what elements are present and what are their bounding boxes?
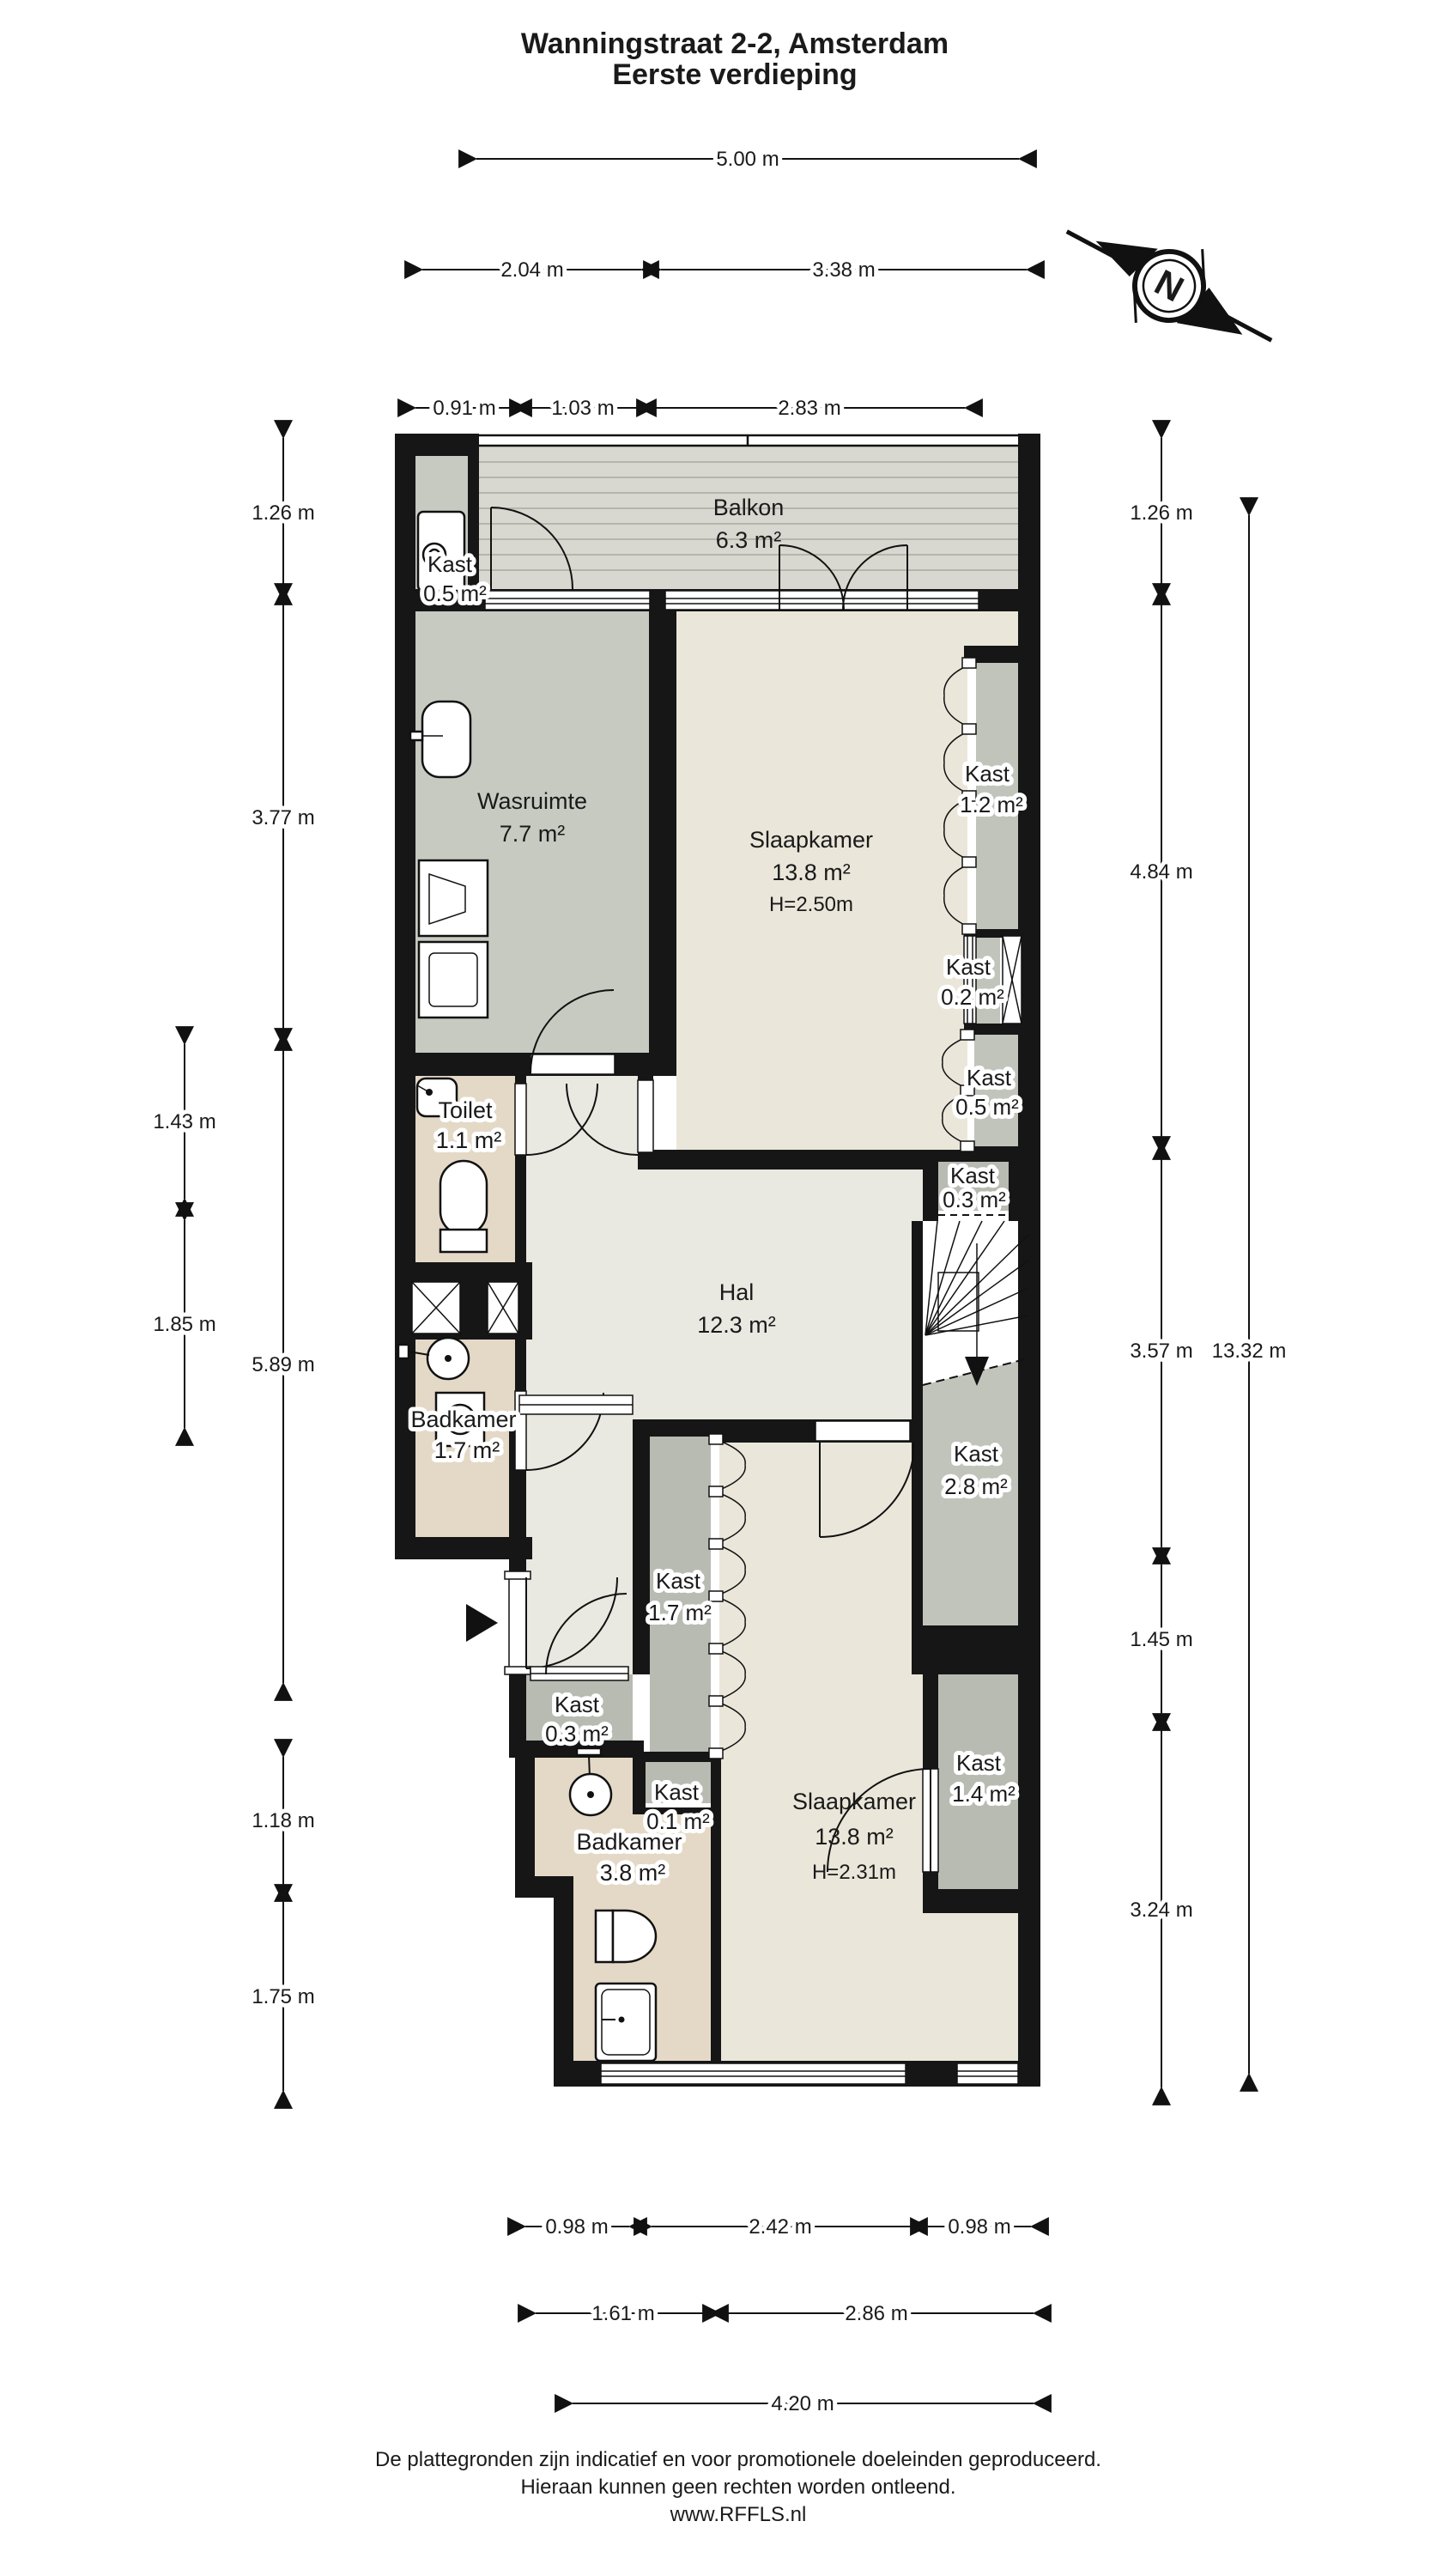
- dim-top-283: 2.83 m: [654, 397, 965, 420]
- dim-left-377: 3.77 m: [252, 601, 314, 1033]
- dim-label: 2.86 m: [845, 2302, 907, 2325]
- compass-icon: N: [1045, 189, 1294, 383]
- room-wasruimte-label: Wasruimte: [477, 788, 587, 814]
- dim-bottom-098b: 0.98 m: [928, 2215, 1031, 2239]
- room-hal-floor-corridor: [526, 1419, 633, 1674]
- room-kast17-label: Kast: [656, 1568, 701, 1594]
- room-hal-floor-upper: [526, 1076, 638, 1170]
- dim-label: 2.83 m: [778, 397, 840, 420]
- room-kast14-area: 1.4 m²: [952, 1781, 1016, 1807]
- entry-door-opening: [509, 1577, 526, 1668]
- dim-label: 1.18 m: [252, 1809, 314, 1832]
- room-kast28-area: 2.8 m²: [944, 1473, 1008, 1499]
- room-slaapkamer2-label: Slaapkamer: [792, 1789, 916, 1814]
- dim-label: 3.57 m: [1130, 1340, 1192, 1363]
- room-kast17-floor: [650, 1437, 711, 1754]
- dim-label: 3.77 m: [252, 806, 314, 829]
- dim-right-145: 1.45 m: [1130, 1565, 1192, 1713]
- dim-right-357: 3.57 m: [1130, 1154, 1192, 1546]
- window: [485, 591, 650, 610]
- room-kast05b-area: 0.5 m²: [955, 1094, 1019, 1120]
- room-balkon-area: 6.3 m²: [716, 527, 782, 553]
- door-opening: [964, 936, 976, 1024]
- dim-bottom-242: 2.42 m: [652, 2215, 910, 2239]
- dim-label: 1.61 m: [591, 2302, 654, 2325]
- room-hal-area: 12.3 m²: [697, 1312, 776, 1338]
- footer: De plattegronden zijn indicatief en voor…: [375, 2448, 1101, 2526]
- room-balkon-label: Balkon: [713, 495, 785, 520]
- washing-machine-icon: [419, 860, 488, 936]
- window: [665, 591, 979, 610]
- dim-right-126: 1.26 m: [1130, 438, 1192, 587]
- dim-label: 5.00 m: [716, 148, 779, 171]
- room-kast03l-area: 0.3 m²: [545, 1721, 609, 1747]
- room-kast17-area: 1.7 m²: [648, 1600, 712, 1625]
- door-opening: [530, 1054, 615, 1074]
- dim-top-091: 0.91 m: [415, 397, 514, 420]
- dim-label: 1.26 m: [252, 501, 314, 525]
- footer-disclaimer-1: De plattegronden zijn indicatief en voor…: [375, 2448, 1101, 2471]
- room-slaapkamer2-height: H=2.31m: [812, 1861, 896, 1884]
- room-badkamer2-area: 3.8 m²: [600, 1860, 666, 1886]
- room-slaapkamer1-label: Slaapkamer: [749, 827, 873, 853]
- dim-bottom-098a: 0.98 m: [525, 2215, 629, 2239]
- room-badkamer1-area: 1.7 m²: [434, 1437, 500, 1463]
- dim-label: 2.42 m: [749, 2215, 811, 2239]
- room-kast02-floor: [976, 936, 1000, 1024]
- floorplan-svg: Wanningstraat 2-2, Amsterdam Eerste verd…: [0, 0, 1449, 2576]
- room-kast03r-label: Kast: [950, 1163, 996, 1188]
- toilet-icon: [440, 1161, 487, 1252]
- room-kast28-label: Kast: [954, 1441, 999, 1467]
- dim-label: 2.04 m: [500, 258, 563, 282]
- room-kast02-area: 0.2 m²: [941, 984, 1004, 1010]
- entry-arrow-icon: [466, 1604, 498, 1642]
- room-kast12-label: Kast: [965, 761, 1010, 787]
- room-kast02-label: Kast: [946, 954, 991, 980]
- dim-label: 1.45 m: [1130, 1628, 1192, 1651]
- dim-top-103: 1.03 m: [527, 397, 639, 420]
- room-badkamer2-label: Badkamer: [576, 1829, 682, 1855]
- room-toilet-label: Toilet: [438, 1097, 493, 1123]
- dim-label: 0.91 m: [433, 397, 495, 420]
- floorplan-page: Wanningstraat 2-2, Amsterdam Eerste verd…: [0, 0, 1449, 2576]
- dim-left-175: 1.75 m: [252, 1902, 314, 2091]
- dryer-icon: [419, 942, 488, 1018]
- room-kast03r-area: 0.3 m²: [943, 1187, 1006, 1212]
- room-badkamer1-label: Badkamer: [410, 1406, 516, 1432]
- dim-label: 4.20 m: [771, 2392, 834, 2415]
- dim-label: 1.85 m: [153, 1313, 215, 1336]
- dim-left-118: 1.18 m: [252, 1757, 314, 1884]
- dim-right-1332: 13.32 m: [1212, 515, 1287, 2074]
- dim-label: 13.32 m: [1212, 1340, 1287, 1363]
- dim-bottom-420: 4.20 m: [573, 2392, 1034, 2415]
- room-slaapkamer2-area: 13.8 m²: [815, 1824, 894, 1850]
- dim-right-324: 3.24 m: [1130, 1731, 1192, 2087]
- dim-label: 5.89 m: [252, 1353, 314, 1376]
- dim-left-589: 5.89 m: [252, 1046, 314, 1683]
- dim-label: 0.98 m: [948, 2215, 1010, 2239]
- room-kast14-label: Kast: [956, 1750, 1002, 1776]
- room-kast01-label: Kast: [654, 1779, 700, 1805]
- dim-label: 1.26 m: [1130, 501, 1192, 525]
- room-kast05a-area: 0.5 m²: [423, 580, 487, 606]
- room-hal-label: Hal: [719, 1279, 755, 1305]
- dim-right-484: 4.84 m: [1130, 601, 1192, 1142]
- dim-label: 1.75 m: [252, 1985, 314, 2008]
- dim-label: 4.84 m: [1130, 860, 1192, 884]
- room-slaapkamer1-height: H=2.50m: [769, 893, 853, 916]
- footer-website: www.RFFLS.nl: [670, 2503, 807, 2526]
- toilet-icon: [596, 1911, 656, 1962]
- dim-top-204: 2.04 m: [422, 258, 641, 282]
- door-opening: [515, 1084, 526, 1155]
- room-kast05b-label: Kast: [967, 1065, 1012, 1091]
- dim-bottom-161: 1.61 m: [536, 2302, 711, 2325]
- page-subtitle: Eerste verdieping: [612, 58, 857, 91]
- room-kast05a-label: Kast: [427, 551, 473, 577]
- page-title: Wanningstraat 2-2, Amsterdam: [521, 27, 949, 60]
- dim-top-338: 3.38 m: [661, 258, 1027, 282]
- dim-label: 1.03 m: [551, 397, 614, 420]
- dim-bottom-286: 2.86 m: [720, 2302, 1034, 2325]
- dim-left-126: 1.26 m: [252, 438, 314, 587]
- window: [957, 2063, 1018, 2084]
- dim-label: 3.38 m: [812, 258, 875, 282]
- room-kast03l-label: Kast: [555, 1692, 600, 1717]
- room-toilet-area: 1.1 m²: [436, 1127, 502, 1153]
- dim-left-185: 1.85 m: [153, 1220, 215, 1428]
- window: [601, 2063, 906, 2084]
- room-kast28-floor: [923, 1358, 1028, 1649]
- footer-disclaimer-2: Hieraan kunnen geen rechten worden ontle…: [520, 2476, 955, 2499]
- dim-label: 3.24 m: [1130, 1899, 1192, 1922]
- door-opening: [638, 1080, 653, 1152]
- bathtub-icon: [596, 1984, 656, 2061]
- dim-top-500: 5.00 m: [476, 148, 1019, 171]
- dim-label: 1.43 m: [153, 1110, 215, 1133]
- door-opening: [815, 1421, 910, 1441]
- room-slaapkamer1-area: 13.8 m²: [772, 860, 851, 885]
- dim-label: 0.98 m: [545, 2215, 608, 2239]
- room-kast12-area: 1.2 m²: [960, 792, 1023, 817]
- room-kast05b-floor: [974, 1035, 1022, 1146]
- balcony-railing: [479, 435, 1018, 446]
- dim-left-143: 1.43 m: [153, 1044, 215, 1199]
- room-wasruimte-area: 7.7 m²: [500, 821, 566, 847]
